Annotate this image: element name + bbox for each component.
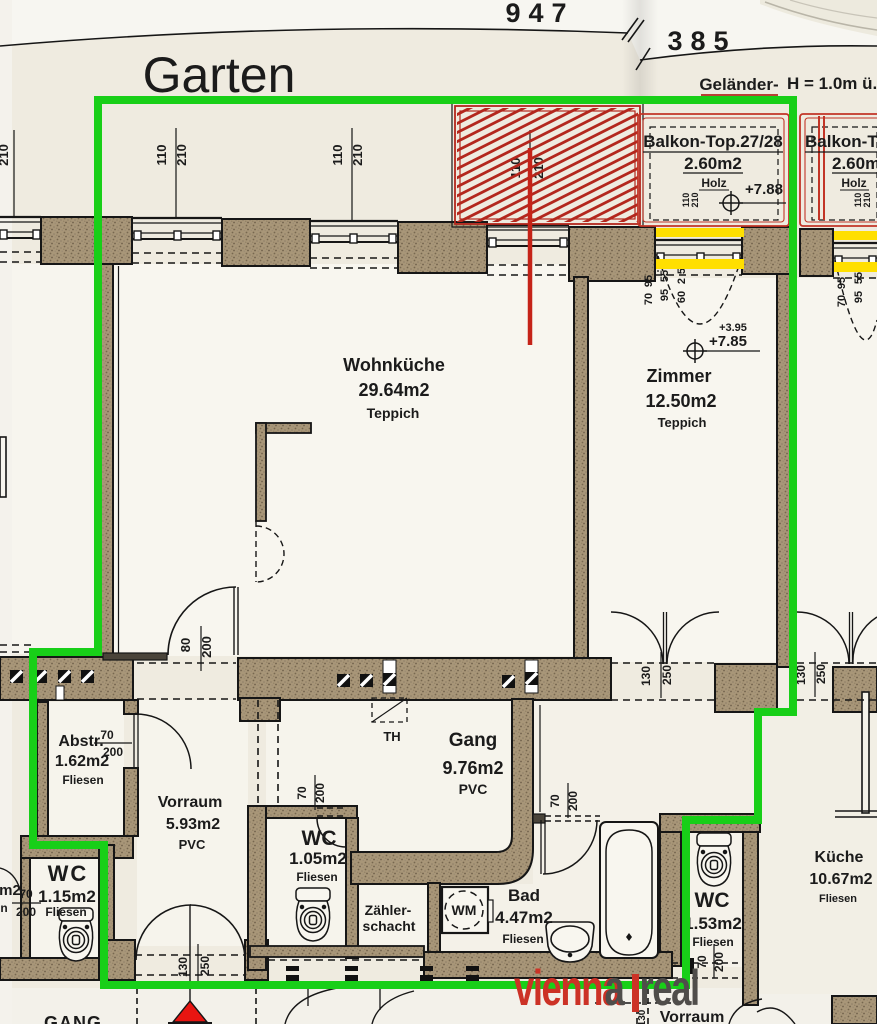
svg-text:Fliesen: Fliesen <box>62 773 103 787</box>
svg-text:PVC: PVC <box>459 781 488 797</box>
svg-text:1.62m2: 1.62m2 <box>55 753 109 770</box>
svg-text:Zimmer: Zimmer <box>646 366 711 386</box>
svg-text:Geländer-: Geländer- <box>699 75 778 94</box>
svg-text:250: 250 <box>198 956 212 976</box>
svg-text:110: 110 <box>330 145 345 166</box>
svg-text:Balkon-Top: Balkon-Top <box>805 132 877 151</box>
svg-text:80: 80 <box>178 638 193 652</box>
svg-text:PVC: PVC <box>179 837 206 852</box>
svg-text:Fliesen: Fliesen <box>819 893 857 905</box>
svg-text:200: 200 <box>16 905 36 919</box>
svg-text:a: a <box>605 960 626 1016</box>
svg-text:2.60m: 2.60m <box>832 154 877 173</box>
svg-text:m2: m2 <box>0 882 21 899</box>
svg-text:5.93m2: 5.93m2 <box>166 816 220 833</box>
svg-text:210: 210 <box>690 192 700 207</box>
svg-text:1.53m2: 1.53m2 <box>684 914 742 933</box>
svg-text:95: 95 <box>853 291 865 303</box>
svg-text:Wohnküche: Wohnküche <box>343 355 445 375</box>
svg-text:55: 55 <box>659 270 671 282</box>
svg-text:1.15m2: 1.15m2 <box>38 887 96 906</box>
svg-text:Küche: Küche <box>815 849 864 866</box>
svg-text:n: n <box>0 901 7 915</box>
svg-text:95: 95 <box>643 275 655 287</box>
svg-text:1.05m2: 1.05m2 <box>289 849 347 868</box>
svg-text:Fliesen: Fliesen <box>502 932 543 946</box>
svg-text:WM: WM <box>452 902 477 918</box>
svg-text:Abstr.: Abstr. <box>58 733 103 750</box>
svg-text:Zähler-: Zähler- <box>365 902 412 918</box>
svg-text:55: 55 <box>853 272 865 284</box>
svg-text:Teppich: Teppich <box>658 415 707 430</box>
svg-text:Holz: Holz <box>841 176 866 190</box>
svg-text:GANG: GANG <box>44 1013 102 1024</box>
svg-text:Fliesen: Fliesen <box>296 870 337 884</box>
svg-text:95: 95 <box>836 277 848 289</box>
svg-text:250: 250 <box>660 665 674 685</box>
svg-text:Gang: Gang <box>449 730 498 751</box>
svg-text:130: 130 <box>176 957 190 977</box>
svg-text:Fliesen: Fliesen <box>692 935 733 949</box>
svg-text:95: 95 <box>659 289 671 301</box>
svg-text:947: 947 <box>505 0 574 28</box>
svg-text:TH: TH <box>383 729 400 744</box>
svg-text:Fliesen: Fliesen <box>45 905 86 919</box>
svg-text:+7.85: +7.85 <box>709 333 747 350</box>
svg-text:Garten: Garten <box>143 47 296 103</box>
svg-text:Holz: Holz <box>701 176 726 190</box>
svg-text:H = 1.0m ü.F: H = 1.0m ü.F <box>787 74 877 93</box>
svg-text:70: 70 <box>836 295 848 307</box>
svg-text:WC: WC <box>695 889 730 912</box>
svg-text:70: 70 <box>548 794 562 808</box>
svg-text:130: 130 <box>639 666 653 686</box>
svg-text:29.64m2: 29.64m2 <box>358 380 429 400</box>
svg-text:210: 210 <box>0 144 11 166</box>
svg-text:70: 70 <box>295 786 309 800</box>
svg-text:70: 70 <box>19 887 33 901</box>
svg-text:250: 250 <box>814 664 828 684</box>
svg-text:2: 2 <box>676 278 688 284</box>
svg-text:2.60m2: 2.60m2 <box>684 154 742 173</box>
svg-text:9.76m2: 9.76m2 <box>442 758 503 778</box>
svg-text:schacht: schacht <box>363 918 416 934</box>
svg-text:Balkon-Top.27/28: Balkon-Top.27/28 <box>643 132 783 151</box>
svg-text:12.50m2: 12.50m2 <box>645 391 716 411</box>
svg-text:WC: WC <box>48 861 89 886</box>
svg-text:385: 385 <box>667 26 736 56</box>
svg-text:10.67m2: 10.67m2 <box>809 871 872 888</box>
svg-text:70: 70 <box>643 293 655 305</box>
svg-text:Teppich: Teppich <box>367 405 420 421</box>
svg-text:60: 60 <box>676 291 688 303</box>
svg-text:real: real <box>640 960 699 1016</box>
svg-text:Vorraum: Vorraum <box>158 794 223 811</box>
svg-text:Bad: Bad <box>508 886 540 905</box>
svg-text:210: 210 <box>862 192 872 207</box>
svg-text:110: 110 <box>154 145 169 166</box>
svg-text:4.47m2: 4.47m2 <box>495 908 553 927</box>
svg-text:+7.88: +7.88 <box>745 181 783 198</box>
svg-text:WC: WC <box>302 827 337 850</box>
